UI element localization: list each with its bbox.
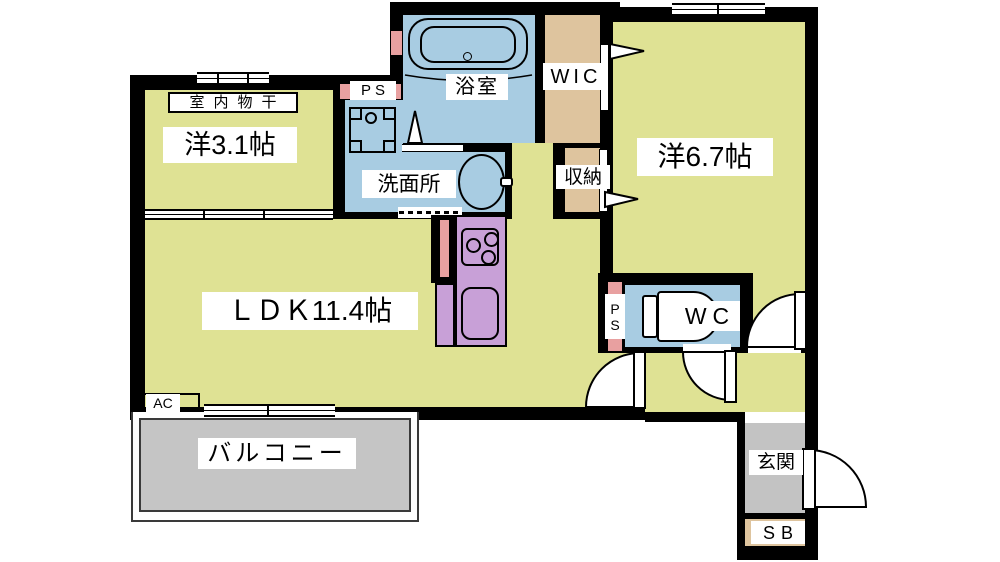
door-leaf-entrance [803,449,815,509]
folding-door-bathroom-icon [408,111,422,143]
pipe-space-wc-label: PS [605,294,625,339]
door-triangle-wic-icon [610,44,644,59]
door-leaf-wc [725,351,736,402]
door-arc-western-room [747,294,800,347]
storage-label: 収納 [556,165,610,189]
indoor-drying-label: 室内物干 [168,92,298,113]
western-room-3-1-label: 洋3.1帖 [163,127,297,163]
western-room-6-7-label: 洋6.7帖 [637,138,773,176]
door-triangle-storage-icon [605,192,638,207]
washroom-label: 洗面所 [362,170,456,198]
ac-label: AC [146,394,180,412]
door-arc-entrance [809,450,866,507]
pipe-space-top-label: PS [350,81,396,100]
floorplan: 室内物干 洋3.1帖 PS 浴室 WIC 洗面所 収納 洋6.7帖 ＬＤＫ11.… [0,0,1000,562]
door-leaf-western-room [795,292,806,349]
bathroom-label: 浴室 [446,74,508,100]
balcony-label: バルコニー [198,438,356,469]
entrance-label: 玄関 [749,450,803,475]
door-arc-ldk [586,353,640,407]
shoe-box-label: SB [751,521,805,544]
ldk-label: ＬＤＫ11.4帖 [202,292,418,330]
door-arc-wc [683,352,731,400]
wc-label: WC [674,301,740,331]
wic-label: WIC [543,63,605,90]
door-leaf-ldk [634,352,645,408]
